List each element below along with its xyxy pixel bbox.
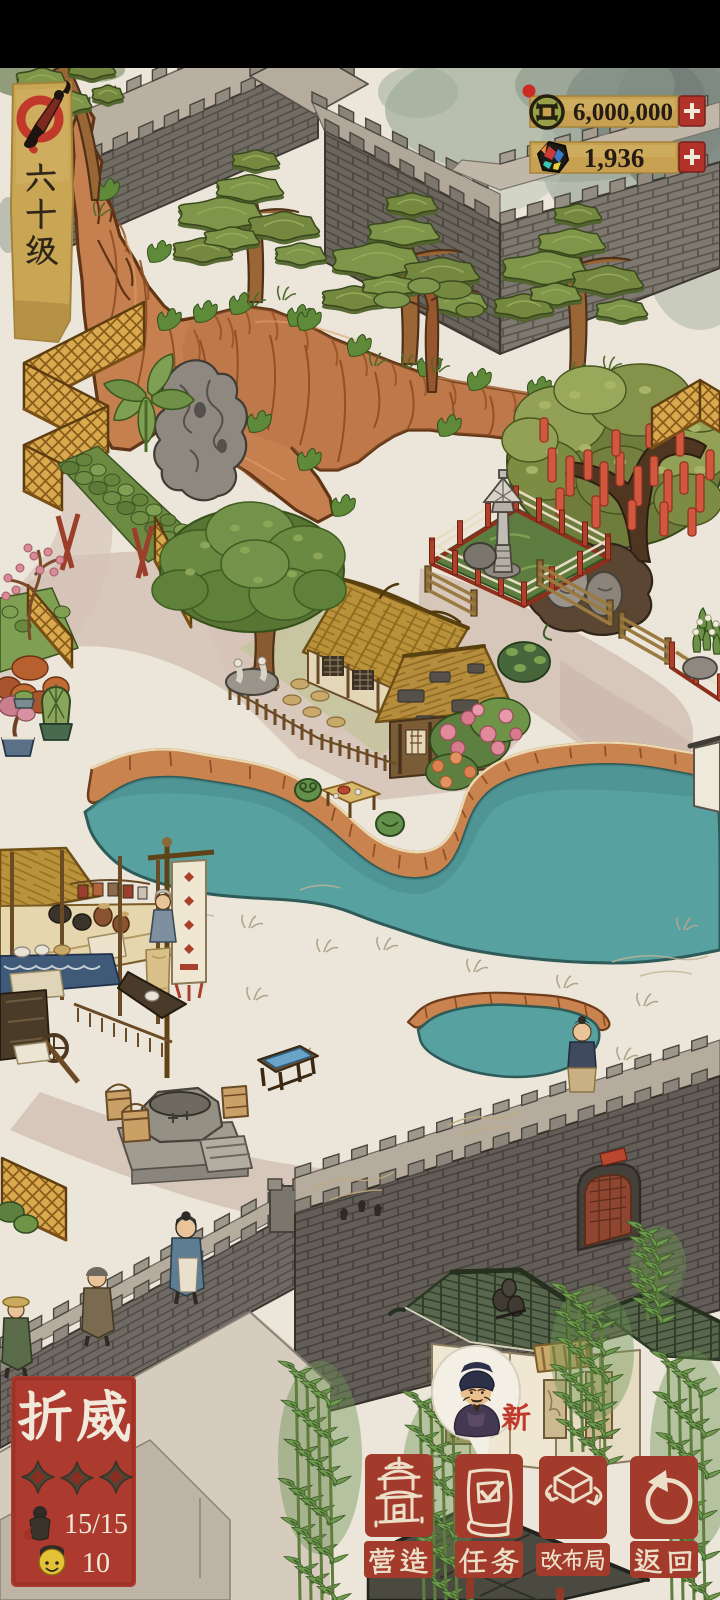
svg-text:1,936: 1,936 [584,143,645,173]
svg-text:6,000,000: 6,000,000 [573,99,673,126]
svg-text:10: 10 [82,1548,110,1579]
svg-text:15/15: 15/15 [64,1509,128,1540]
